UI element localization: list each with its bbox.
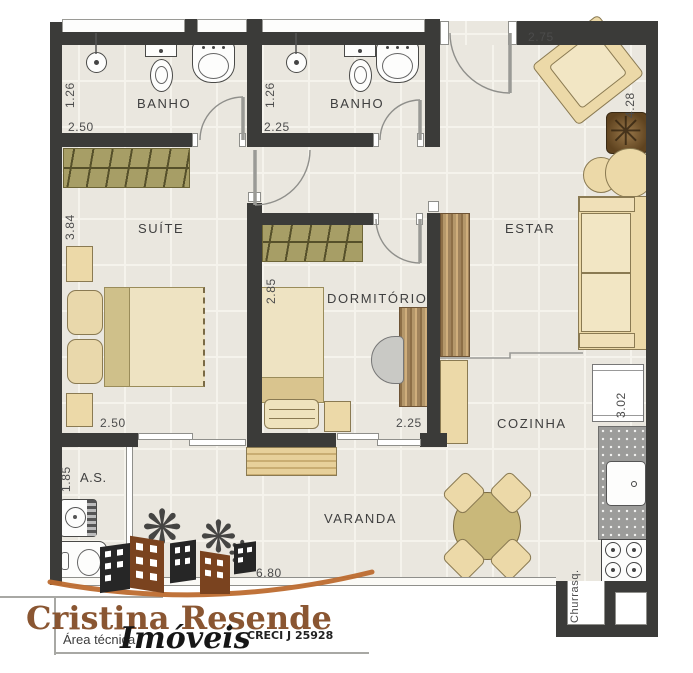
floorplan-screenshot: ✳: [0, 0, 693, 673]
dim-estar-depth: 4.28: [623, 76, 637, 118]
buildings-logo-icon: [94, 502, 266, 594]
room-label-estar: ESTAR: [505, 221, 555, 236]
room-label-dormitorio: DORMITÓRIO: [327, 291, 428, 306]
dim-banho1-depth: 1.26: [63, 72, 77, 108]
dim-banho2-width: 2.25: [264, 120, 290, 134]
room-label-cozinha: COZINHA: [497, 416, 567, 431]
dim-suite-depth: 3.84: [63, 198, 77, 240]
brand-segment: Imóveis: [120, 621, 251, 656]
room-label-suite: SUÍTE: [138, 221, 184, 236]
dim-suite-width: 2.50: [100, 416, 126, 430]
room-label-banho2: BANHO: [330, 96, 384, 111]
dim-estar-width: 2.75: [528, 30, 554, 44]
dim-banho1-width: 2.50: [68, 120, 94, 134]
room-label-banho1: BANHO: [137, 96, 191, 111]
room-label-varanda: VARANDA: [324, 511, 397, 526]
room-label-as: A.S.: [80, 470, 107, 485]
dim-cozinha-depth: 3.02: [614, 376, 628, 418]
dim-dormitorio-width: 2.25: [396, 416, 422, 430]
room-label-churrasqueira: Churrasq.: [569, 565, 581, 623]
brand-creci: CRECI J 25928: [247, 629, 333, 642]
dim-as-depth: 1.85: [59, 456, 73, 492]
dim-banho2-depth: 1.26: [263, 72, 277, 108]
dim-dormitorio-depth: 2.85: [264, 262, 278, 304]
